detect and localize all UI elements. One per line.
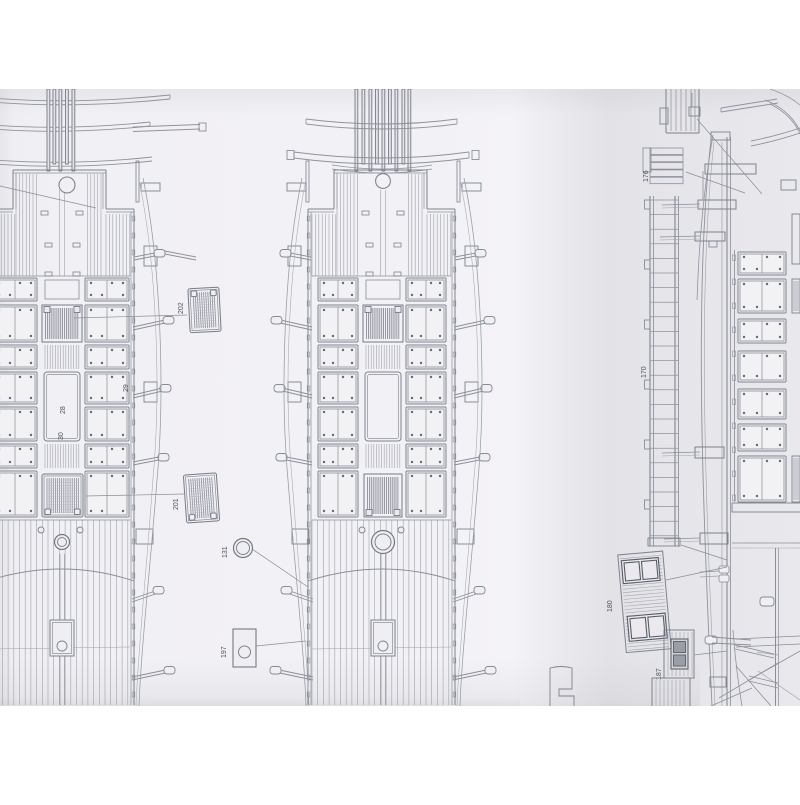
svg-text:29: 29 <box>123 384 130 392</box>
svg-text:201: 201 <box>173 498 180 510</box>
svg-text:30: 30 <box>58 432 65 440</box>
svg-text:131: 131 <box>222 546 229 558</box>
svg-text:170: 170 <box>641 366 648 378</box>
svg-text:197: 197 <box>221 646 228 658</box>
svg-text:180: 180 <box>607 600 614 612</box>
svg-text:28: 28 <box>60 406 67 414</box>
svg-text:176: 176 <box>643 170 650 182</box>
svg-text:202: 202 <box>178 302 185 314</box>
